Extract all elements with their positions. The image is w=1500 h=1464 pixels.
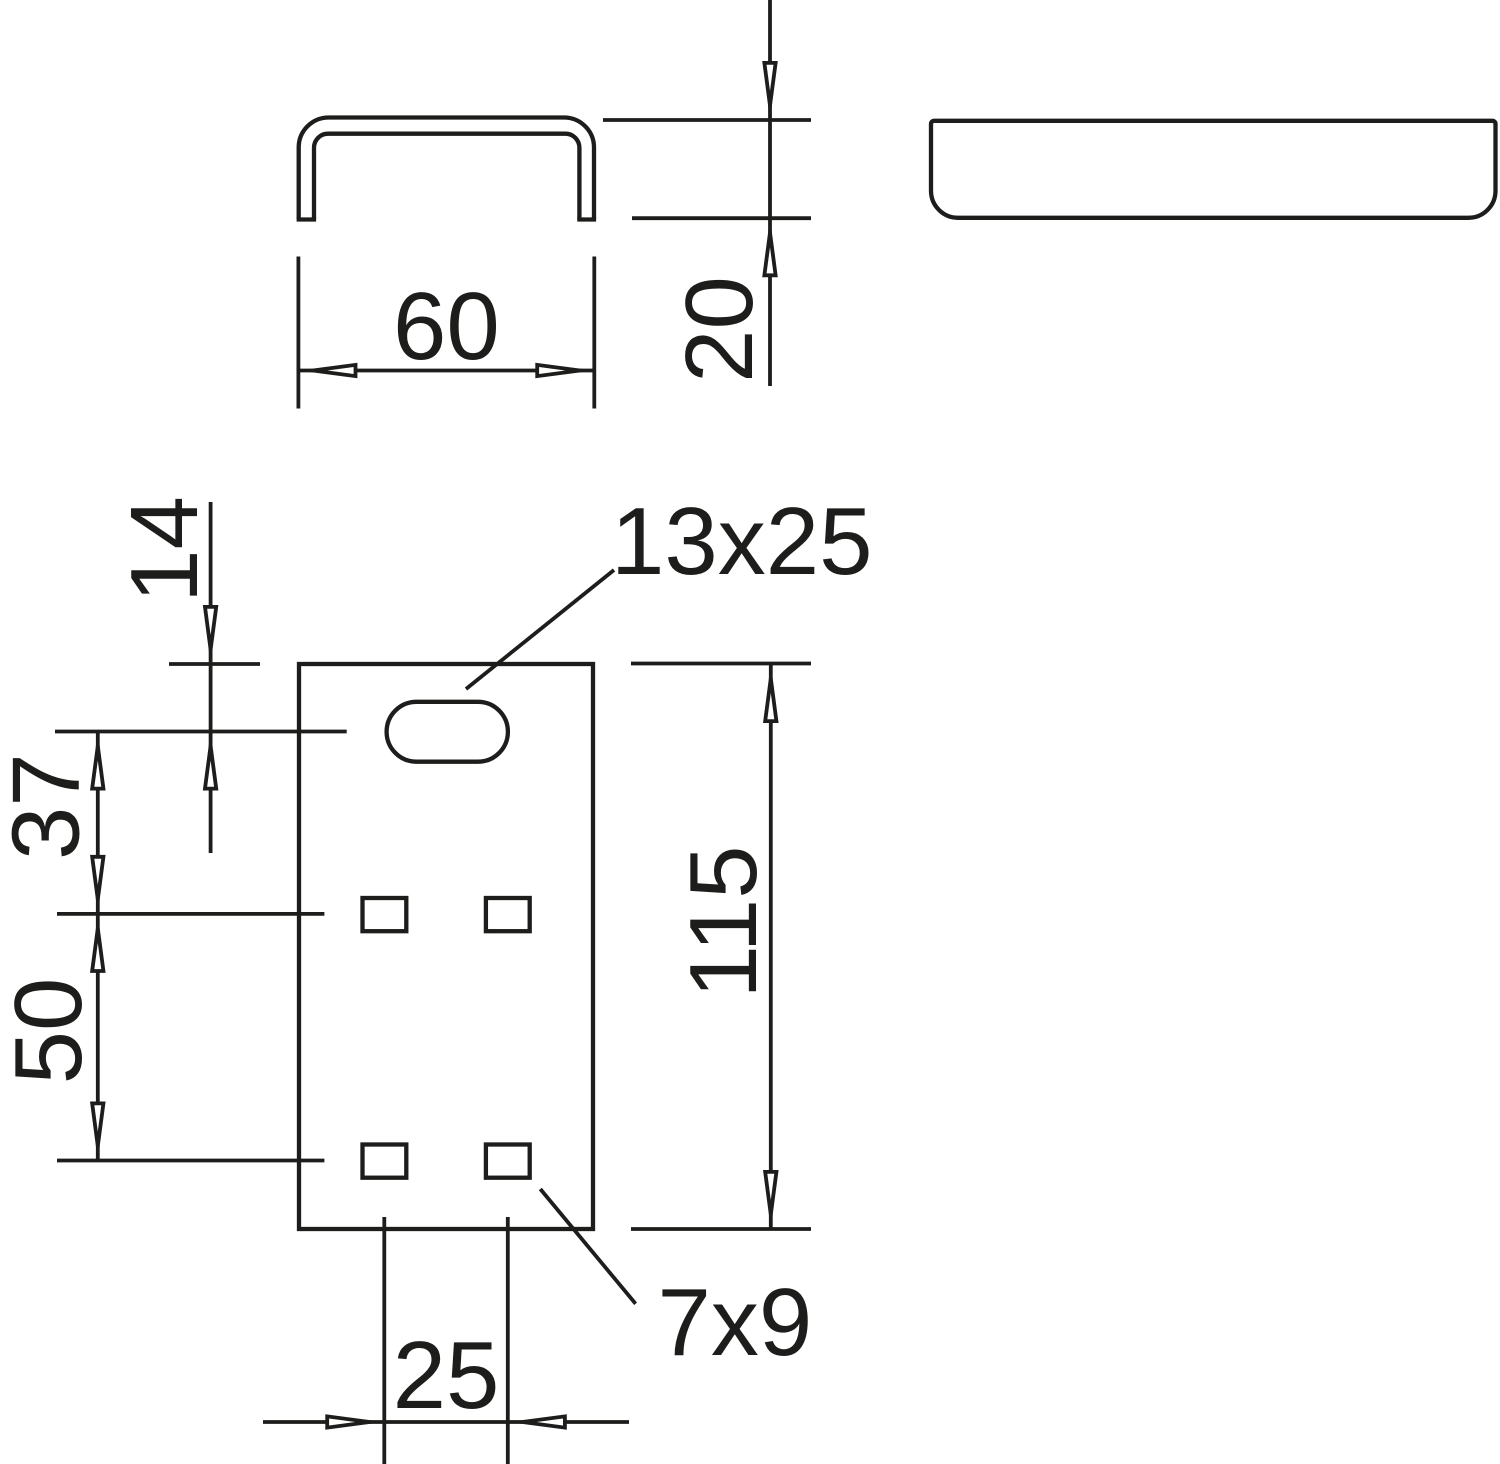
svg-text:7x9: 7x9 <box>658 1269 813 1376</box>
svg-text:50: 50 <box>0 978 102 1085</box>
svg-text:14: 14 <box>111 496 218 603</box>
svg-text:60: 60 <box>393 273 500 380</box>
svg-text:13x25: 13x25 <box>611 488 873 595</box>
svg-text:25: 25 <box>393 1322 500 1429</box>
svg-text:37: 37 <box>0 753 100 860</box>
svg-text:20: 20 <box>666 276 773 383</box>
svg-text:115: 115 <box>670 845 777 998</box>
